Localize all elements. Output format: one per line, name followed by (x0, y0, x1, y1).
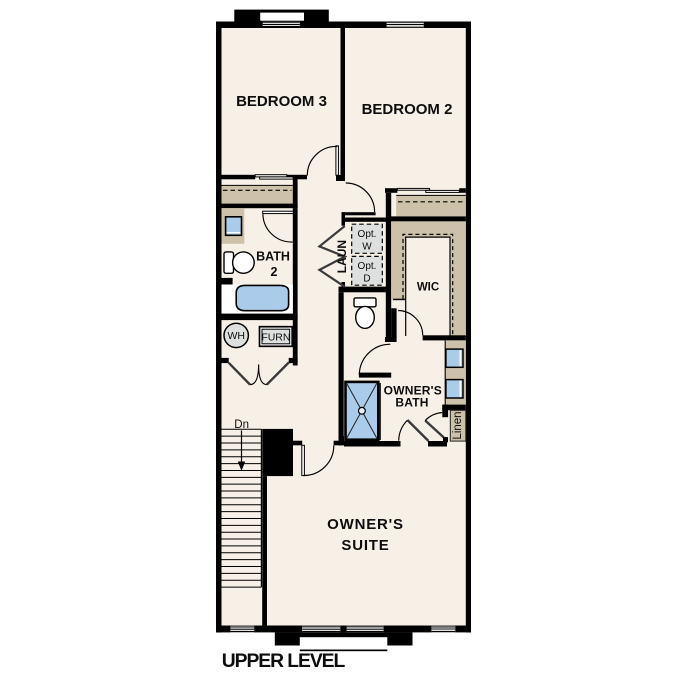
svg-text:FURN: FURN (261, 331, 290, 343)
svg-text:BEDROOM 3: BEDROOM 3 (236, 93, 327, 110)
svg-text:WIC: WIC (417, 281, 439, 293)
svg-text:LAUN: LAUN (335, 240, 349, 273)
svg-text:WH: WH (227, 330, 245, 342)
svg-text:SUITE: SUITE (341, 537, 389, 554)
svg-text:OWNER'S: OWNER'S (327, 516, 404, 533)
svg-text:BEDROOM 2: BEDROOM 2 (362, 101, 453, 118)
svg-text:W: W (362, 241, 372, 252)
svg-text:Opt.: Opt. (358, 229, 377, 240)
svg-text:D: D (363, 274, 370, 285)
svg-text:2: 2 (271, 265, 278, 279)
svg-text:Dn: Dn (234, 419, 249, 431)
svg-text:BATH: BATH (256, 250, 290, 264)
svg-text:Opt.: Opt. (358, 261, 377, 272)
svg-text:BATH: BATH (395, 396, 428, 410)
svg-text:UPPER LEVEL: UPPER LEVEL (222, 651, 346, 672)
svg-text:Linen: Linen (452, 411, 464, 439)
